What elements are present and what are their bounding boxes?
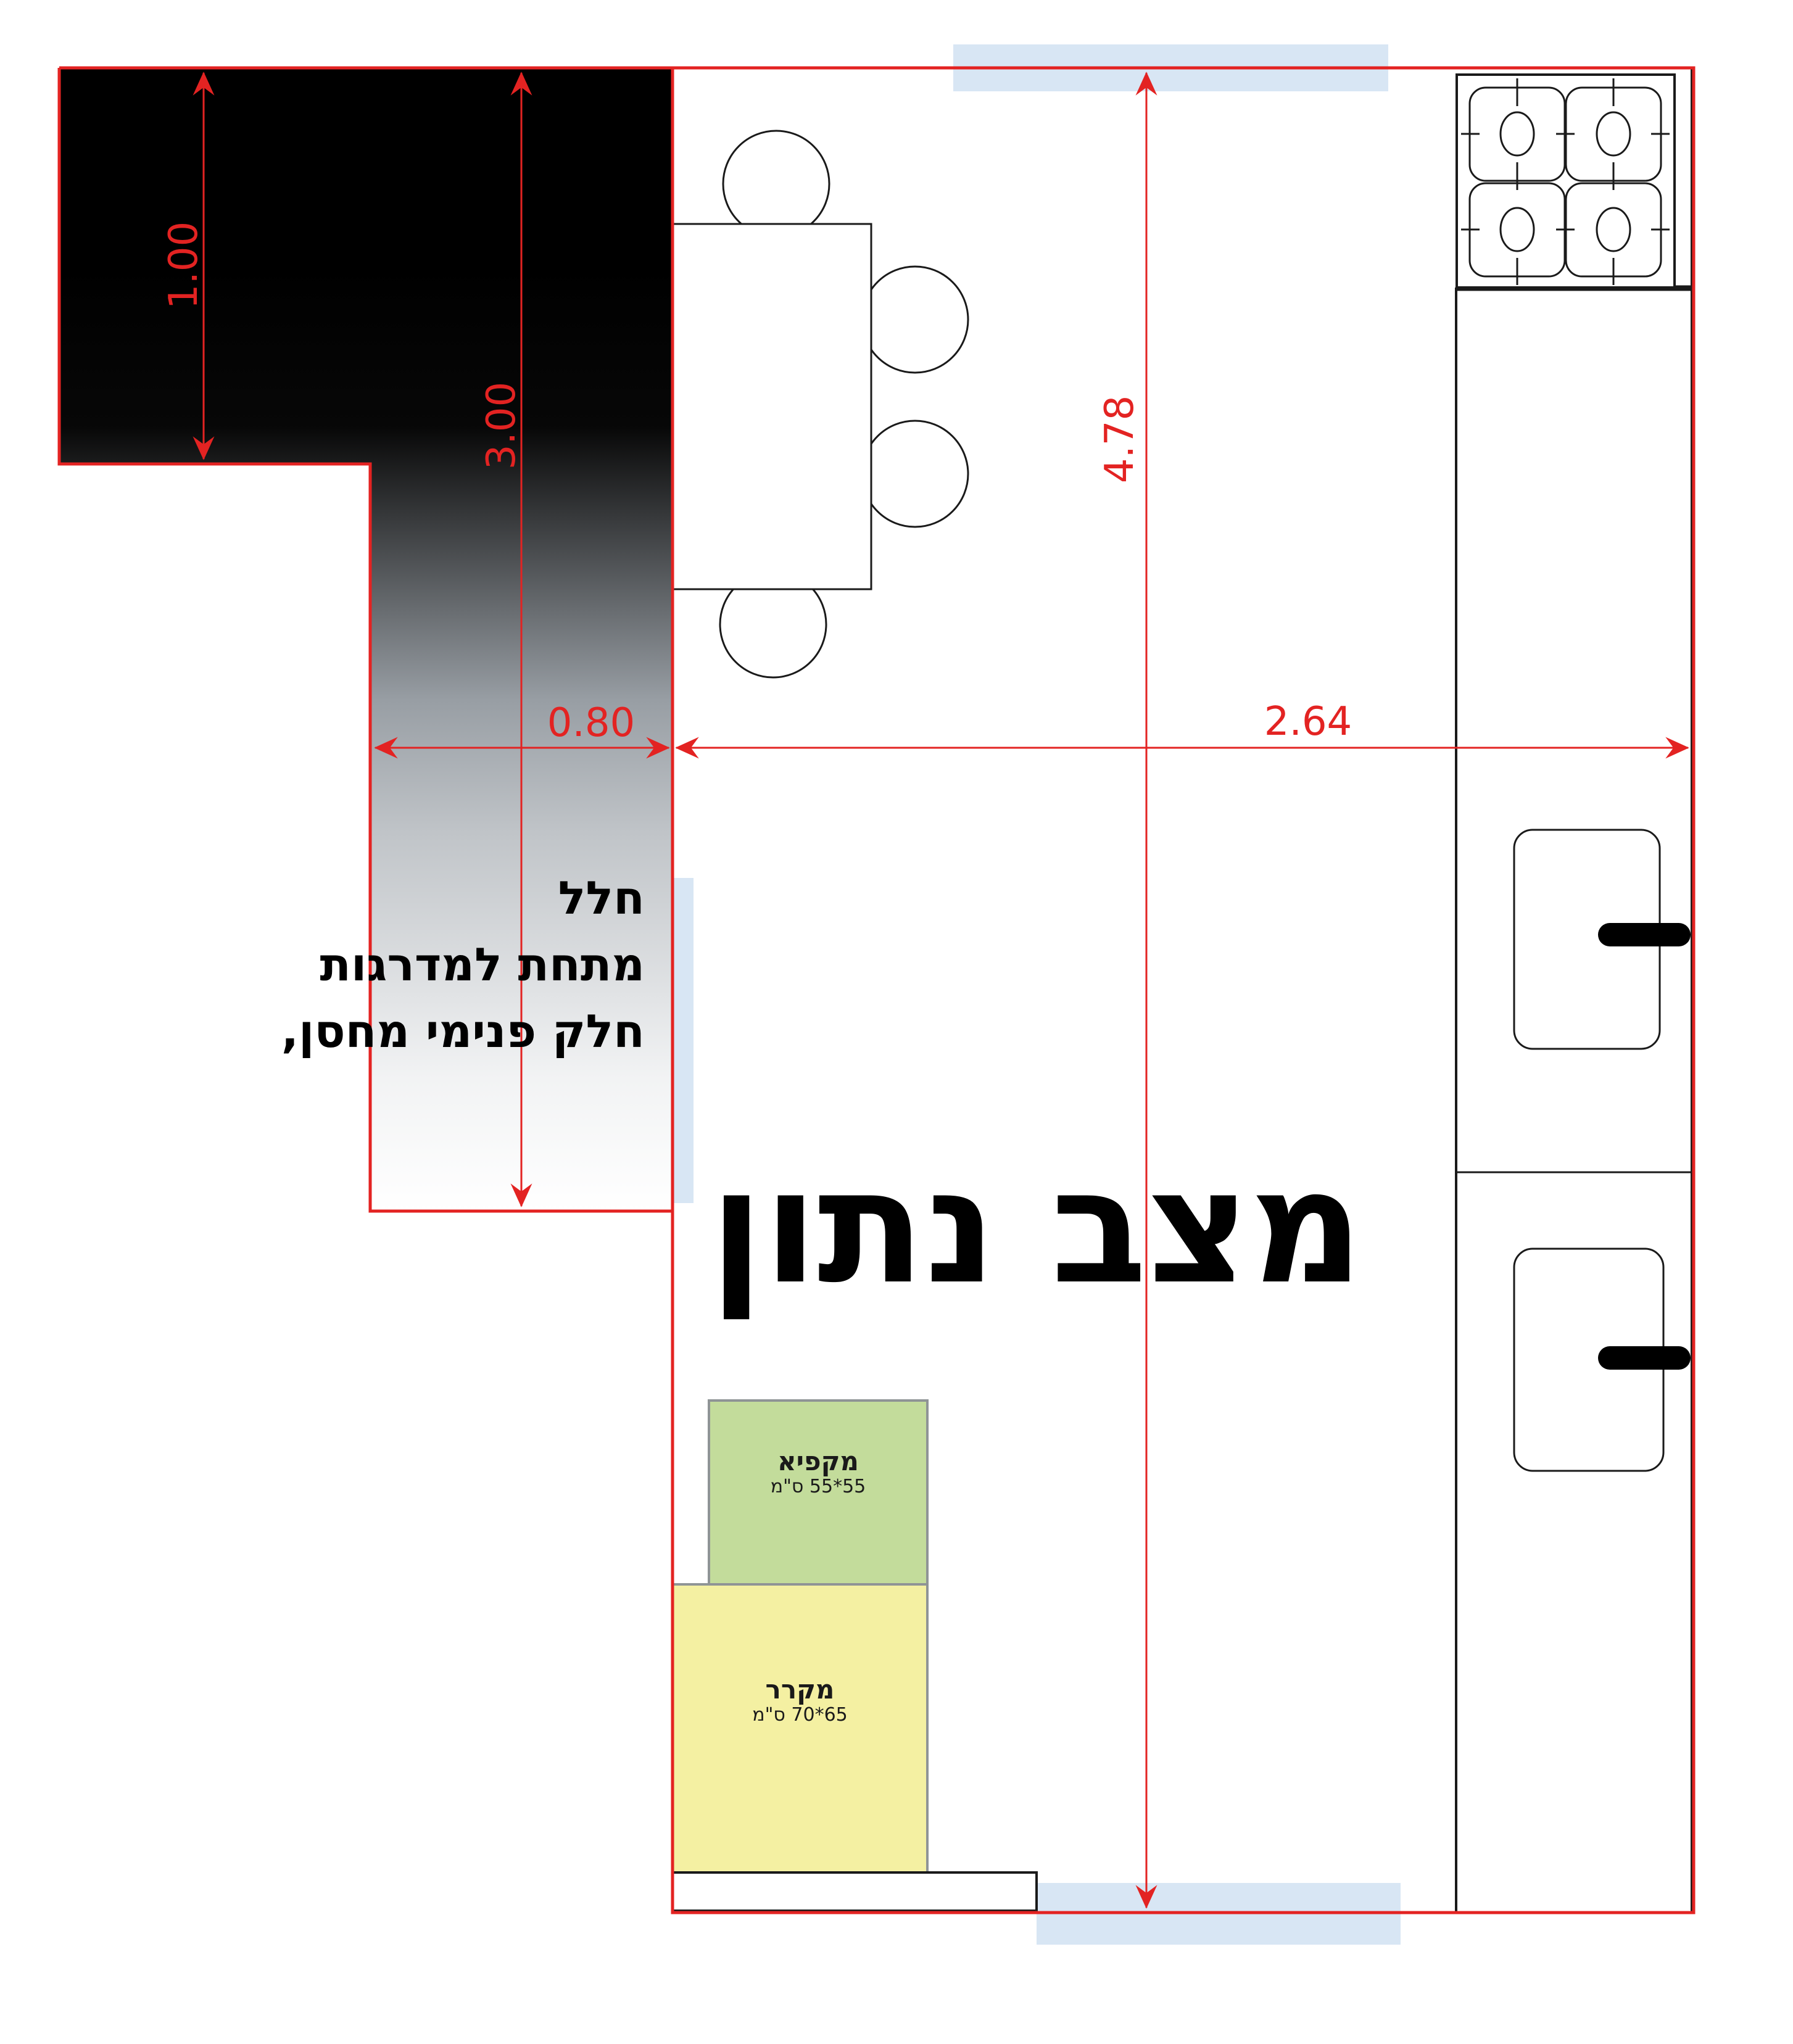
freezer-size: 55*55 ס"מ — [709, 1476, 927, 1498]
fridge-name: מקרר — [673, 1676, 927, 1704]
dining-table — [673, 224, 871, 589]
page-title: מצב נתון — [759, 1149, 1364, 1306]
note-line-1: חלל — [370, 865, 645, 932]
cooktop — [1457, 75, 1675, 288]
stair-block-top — [59, 68, 673, 464]
oven-handle-upper — [1598, 923, 1691, 946]
dim-value-kitchen-height: 4.78 — [1100, 371, 1140, 507]
dim-value-kitchen-width: 2.64 — [1240, 702, 1376, 742]
chair-right-upper — [862, 267, 968, 373]
tall-cabinet-column — [1456, 68, 1694, 1913]
note-line-3: חלק פנימי מחסן, — [370, 998, 645, 1065]
dim-value-stair-width: 0.80 — [523, 703, 659, 743]
floor-plan-page: 1.00 3.00 4.78 0.80 2.64 חלל מתחת למדרגו… — [0, 0, 1793, 2044]
note-line-2: מתחת למדרגות — [370, 932, 645, 998]
bottom-counter — [673, 1872, 1037, 1911]
freezer-name: מקפיא — [709, 1447, 927, 1476]
oven-handle-lower — [1598, 1346, 1691, 1370]
freezer-label: מקפיא 55*55 ס"מ — [709, 1447, 927, 1498]
fridge-box — [673, 1584, 927, 1872]
fridge-size: 65*70 ס"מ — [673, 1704, 927, 1726]
chair-right-lower — [862, 421, 968, 527]
under-stairs-note: חלל מתחת למדרגות חלק פנימי מחסן, — [370, 865, 645, 1065]
floor-plan-canvas — [0, 0, 1793, 2044]
dim-value-stair-top-depth: 1.00 — [164, 197, 204, 333]
dim-value-stair-height: 3.00 — [482, 358, 521, 494]
chair-top — [723, 131, 829, 237]
fridge-label: מקרר 65*70 ס"מ — [673, 1676, 927, 1726]
